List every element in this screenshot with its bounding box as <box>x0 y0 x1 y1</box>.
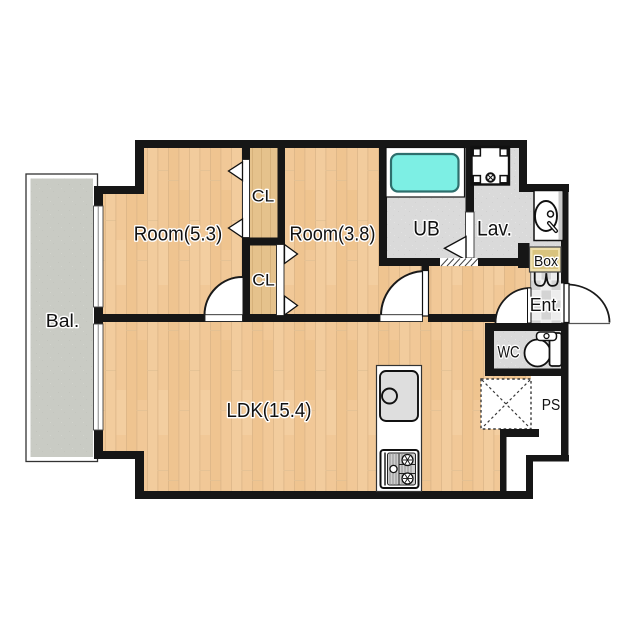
svg-text:Box: Box <box>534 254 559 270</box>
svg-text:Room(3.8): Room(3.8) <box>290 223 376 246</box>
svg-text:PS: PS <box>542 397 561 414</box>
svg-text:Lav.: Lav. <box>477 217 512 241</box>
svg-text:UB: UB <box>413 217 440 241</box>
svg-text:Room(5.3): Room(5.3) <box>134 223 223 246</box>
svg-text:CL: CL <box>252 187 275 206</box>
svg-text:LDK(15.4): LDK(15.4) <box>227 399 312 422</box>
svg-text:Bal.: Bal. <box>46 311 80 331</box>
svg-text:Ent.: Ent. <box>530 295 562 315</box>
svg-text:CL: CL <box>252 271 275 290</box>
svg-text:WC: WC <box>498 343 520 362</box>
